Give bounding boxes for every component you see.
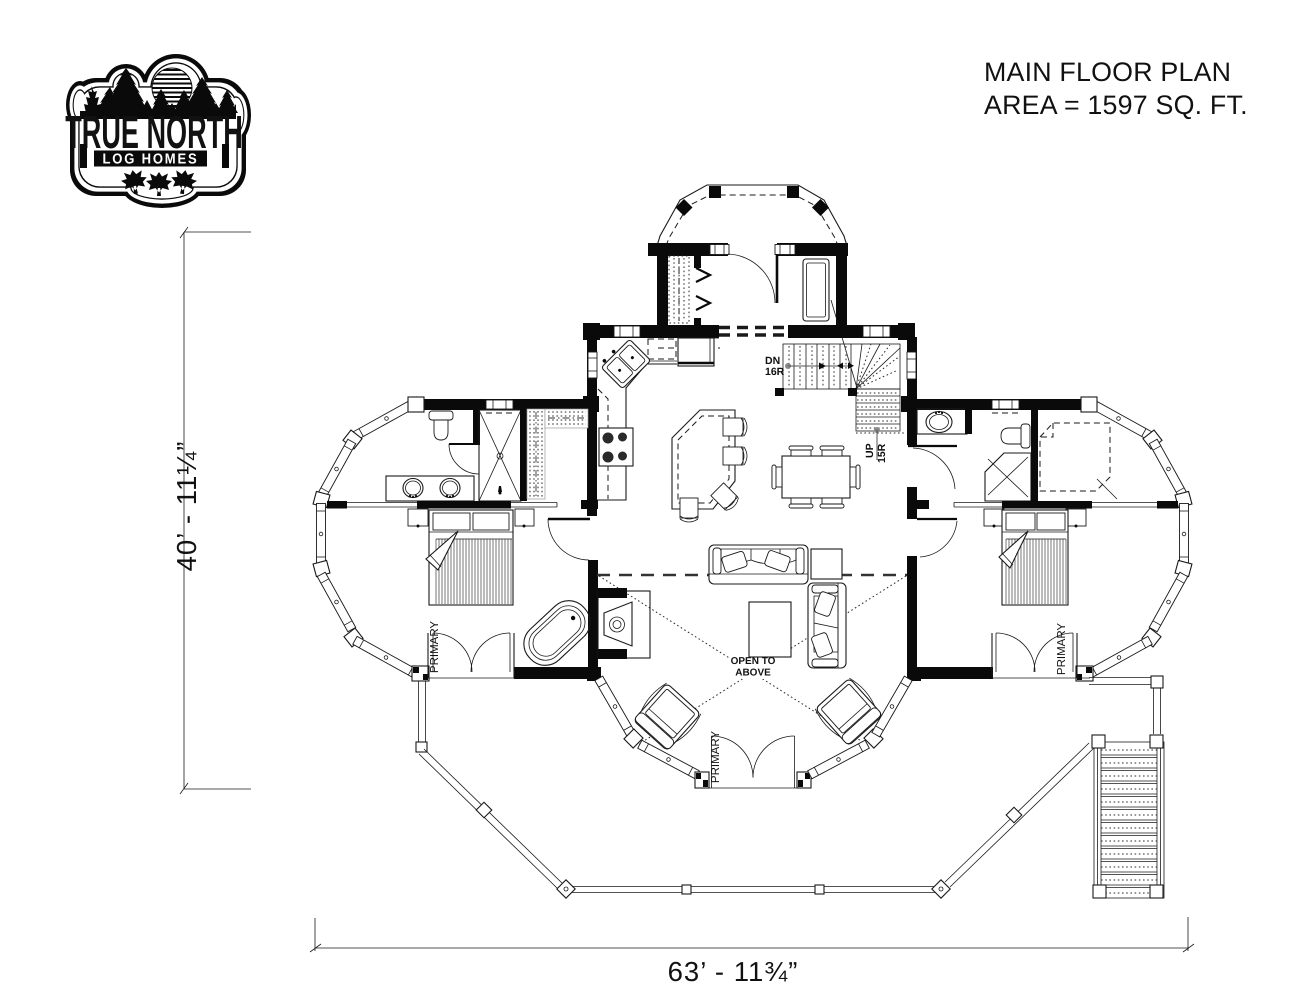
svg-text:PRIMARY: PRIMARY — [1056, 623, 1068, 676]
svg-text:AREA = 1597 SQ. FT.: AREA = 1597 SQ. FT. — [984, 90, 1248, 120]
svg-text:UP: UP — [864, 443, 876, 458]
svg-text:MAIN FLOOR PLAN: MAIN FLOOR PLAN — [984, 57, 1231, 87]
svg-text:ABOVE: ABOVE — [735, 668, 771, 679]
svg-text:15R: 15R — [876, 443, 888, 463]
svg-text:PRIMARY: PRIMARY — [429, 621, 441, 674]
svg-text:63’ - 11¾”: 63’ - 11¾” — [668, 956, 799, 987]
svg-text:OPEN TO: OPEN TO — [731, 656, 776, 667]
svg-text:LOG HOMES: LOG HOMES — [103, 152, 199, 168]
svg-text:16R: 16R — [765, 366, 785, 378]
svg-text:PRIMARY: PRIMARY — [710, 731, 722, 784]
svg-text:40’ - 11¼”: 40’ - 11¼” — [171, 441, 202, 572]
